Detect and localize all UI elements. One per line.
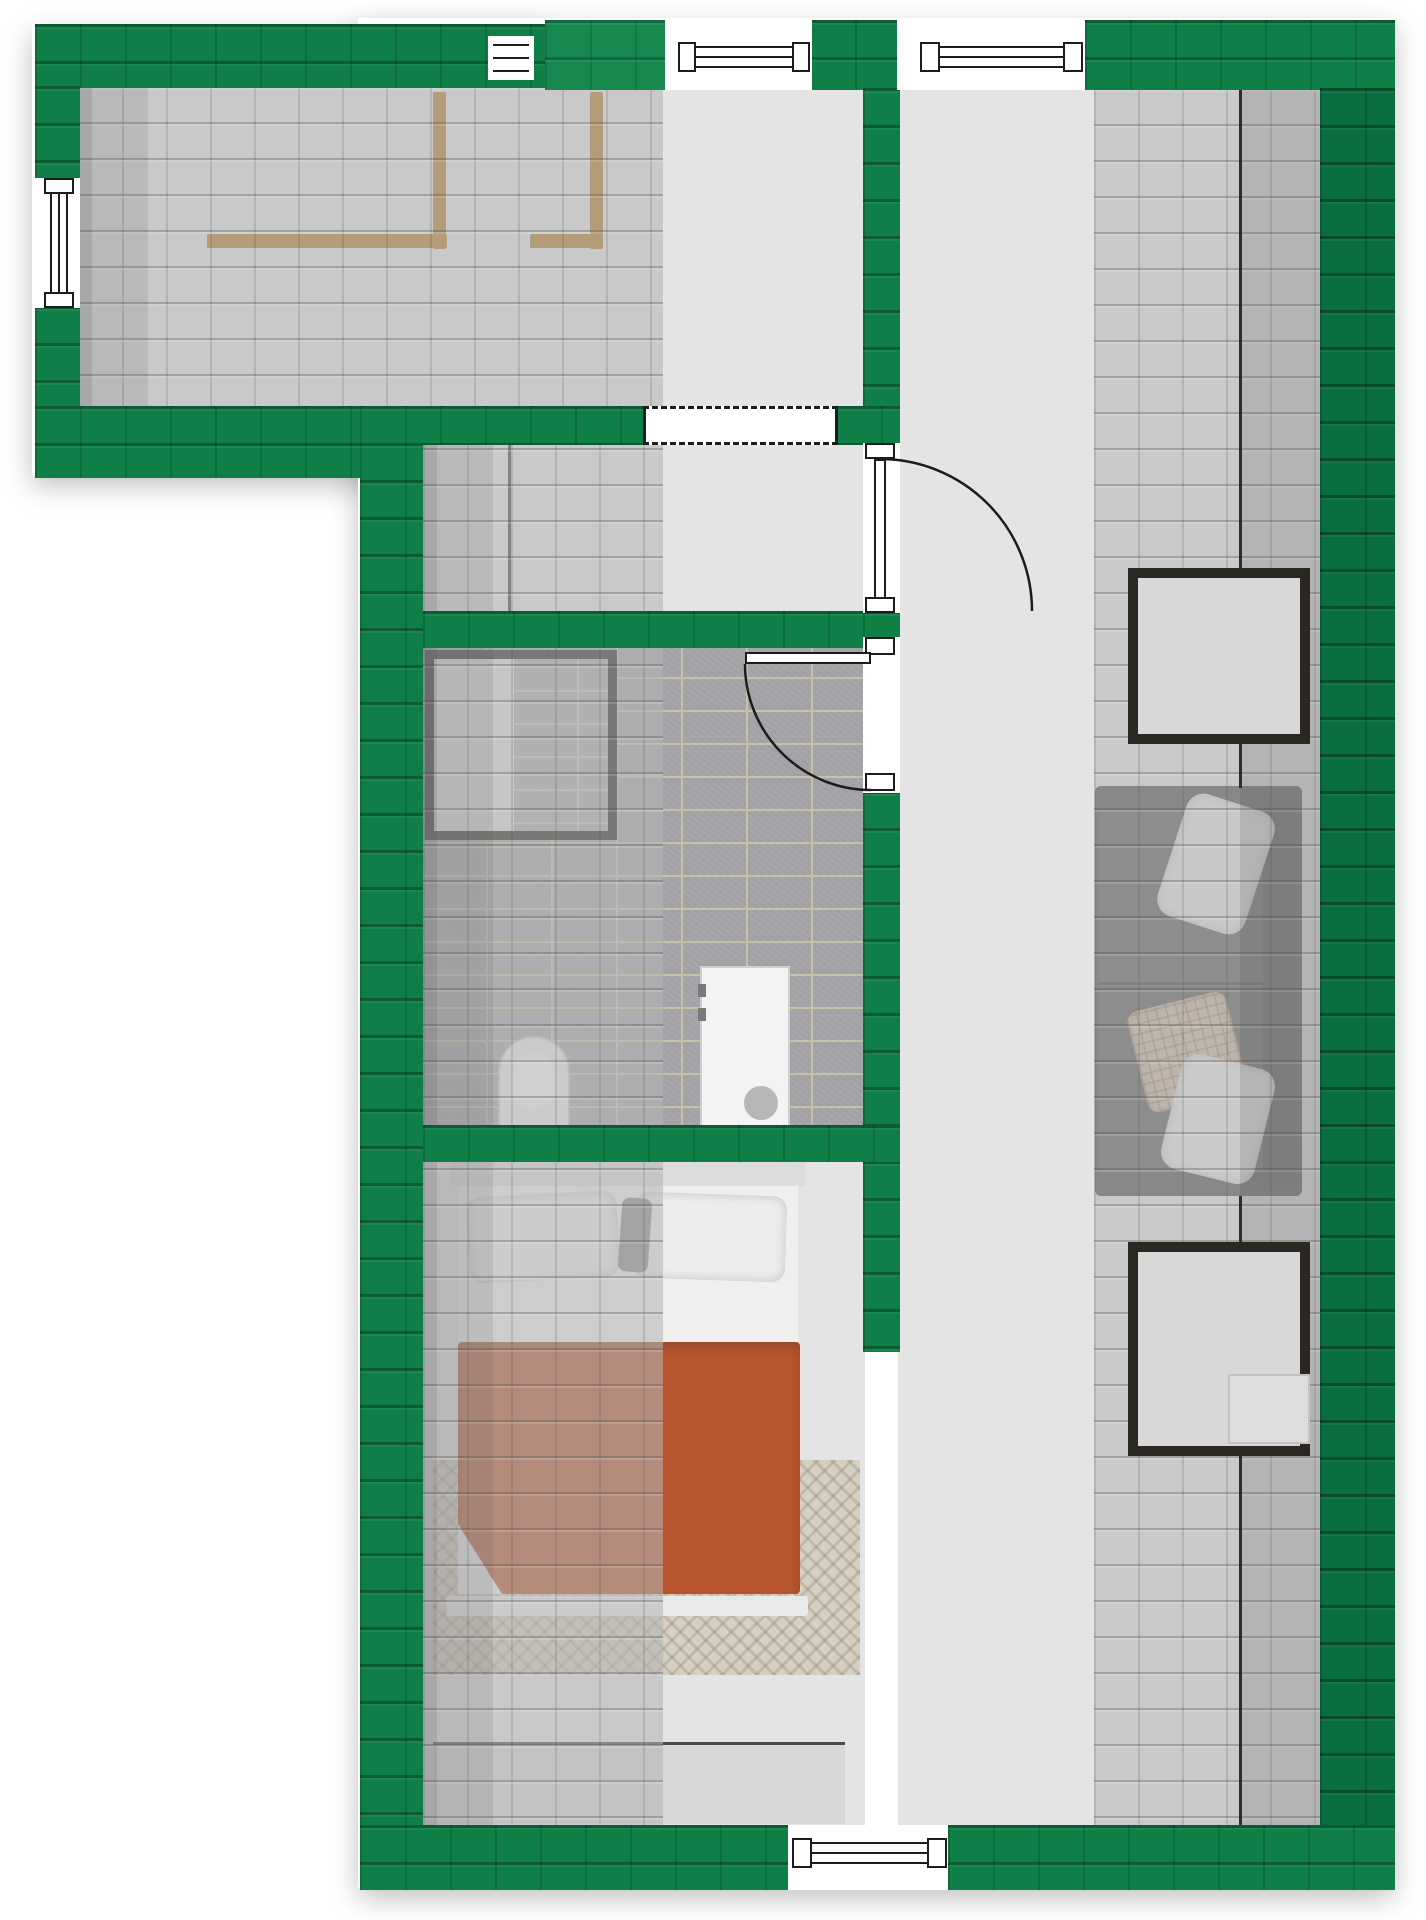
roof-ridge-line-bottom xyxy=(1239,1455,1242,1825)
main-roof-bottom-right xyxy=(948,1825,1395,1890)
top-window-right-cap-r xyxy=(1063,42,1083,72)
hallway-wall-lower xyxy=(863,791,900,1352)
wing-roof-top xyxy=(35,24,545,88)
bottom-window-cap-l xyxy=(792,1838,812,1868)
closet-door-cap-bottom xyxy=(865,597,895,613)
closet-door-cap-top xyxy=(865,443,895,459)
wing-left-window-cap-bottom xyxy=(44,292,74,308)
roof-ridge-line-mid2 xyxy=(1239,1196,1242,1242)
main-roof-left-edge xyxy=(360,406,423,1827)
washbasin-handle-bottom xyxy=(698,1008,706,1021)
landing-wall-right-of-opening xyxy=(836,406,900,445)
landing-south-wall xyxy=(35,406,645,445)
bathroom-south-wall xyxy=(423,1125,900,1162)
floor-plan-canvas xyxy=(0,0,1426,1920)
dashed-interior-opening xyxy=(643,406,838,445)
wing-left-window-glass xyxy=(50,194,68,292)
top-window-left-cap-l xyxy=(678,42,696,72)
roof-ridge-line-mid1 xyxy=(1239,742,1242,788)
closet-door-leaf xyxy=(874,459,886,599)
wing-left-window-cap-top xyxy=(44,178,74,194)
bathroom-north-wall xyxy=(423,611,900,648)
roof-overlay-right-column xyxy=(1094,88,1322,1825)
bottom-window-glass xyxy=(812,1842,927,1864)
main-roof-top-right xyxy=(1085,20,1395,90)
small-top-window-glass xyxy=(493,44,529,72)
bathroom-door-cap-bottom xyxy=(865,773,895,791)
hallway-wall-upper xyxy=(863,88,900,445)
skylight-upper xyxy=(1128,568,1310,744)
top-wall-pier xyxy=(810,20,897,90)
top-window-left-cap-r xyxy=(792,42,810,72)
main-roof-top-left xyxy=(545,20,667,90)
main-roof-right-edge xyxy=(1320,88,1395,1890)
washbasin-unit xyxy=(700,966,790,1128)
top-window-left-glass xyxy=(696,46,792,68)
roof-overlay-wing xyxy=(78,86,663,412)
bathroom-door-leaf xyxy=(745,652,871,664)
roof-ridge-line-top xyxy=(1239,90,1242,568)
side-table xyxy=(1228,1374,1310,1444)
bottom-window-cap-r xyxy=(927,1838,947,1868)
main-roof-bottom-left xyxy=(360,1825,788,1890)
washbasin-drain xyxy=(744,1086,778,1120)
wing-roof-left-upper xyxy=(35,86,80,180)
washbasin-handle-top xyxy=(698,984,706,997)
hallway-wall-mid xyxy=(863,611,900,639)
top-window-right-glass xyxy=(940,46,1063,68)
top-window-right-cap-l xyxy=(920,42,940,72)
